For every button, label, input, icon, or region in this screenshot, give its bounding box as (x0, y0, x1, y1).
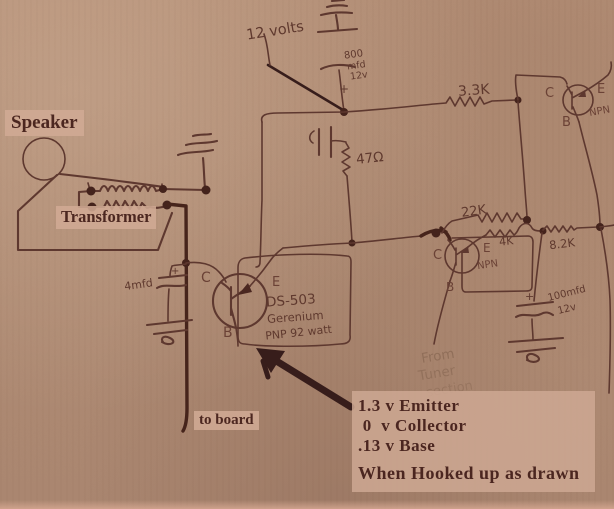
resistor-33k-label: 3.3K (458, 82, 491, 100)
npn2-collector-letter: C (433, 248, 442, 263)
resistor-47-label: 47Ω (355, 149, 384, 168)
npn1-collector-letter: C (545, 86, 554, 101)
npn2-emitter-letter: E (483, 241, 491, 255)
to-board-label: to board (194, 411, 259, 430)
base-voltage-text: .13 v Base (358, 436, 595, 456)
cap-4-plus-sign: + (171, 266, 179, 277)
ds503-base-letter: B (223, 325, 233, 341)
voltage-annotation-box: 1.3 v Emitter 0 v Collector .13 v Base W… (352, 391, 595, 492)
scan-edge-strip (0, 500, 614, 509)
cap-100-plus-sign: + (525, 290, 534, 303)
transformer-label: Transformer (56, 206, 156, 229)
hookup-note-text: When Hooked up as drawn (358, 463, 595, 484)
npn2-base-letter: B (446, 280, 454, 294)
ds503-collector-letter: C (201, 270, 211, 286)
cap-800-plus-sign: + (339, 82, 349, 96)
speaker-label: Speaker (5, 110, 84, 136)
scanned-schematic-page: 12 volts 800 mfd 12v + 3.3K 47Ω 22K 4K 8… (0, 0, 614, 509)
npn1-base-letter: B (562, 115, 571, 130)
npn1-emitter-letter: E (597, 82, 605, 97)
resistor-4k-label: 4K (499, 234, 515, 248)
emitter-voltage-text: 1.3 v Emitter (358, 396, 595, 416)
collector-voltage-text: 0 v Collector (358, 416, 595, 436)
ds503-emitter-letter: E (272, 275, 280, 290)
